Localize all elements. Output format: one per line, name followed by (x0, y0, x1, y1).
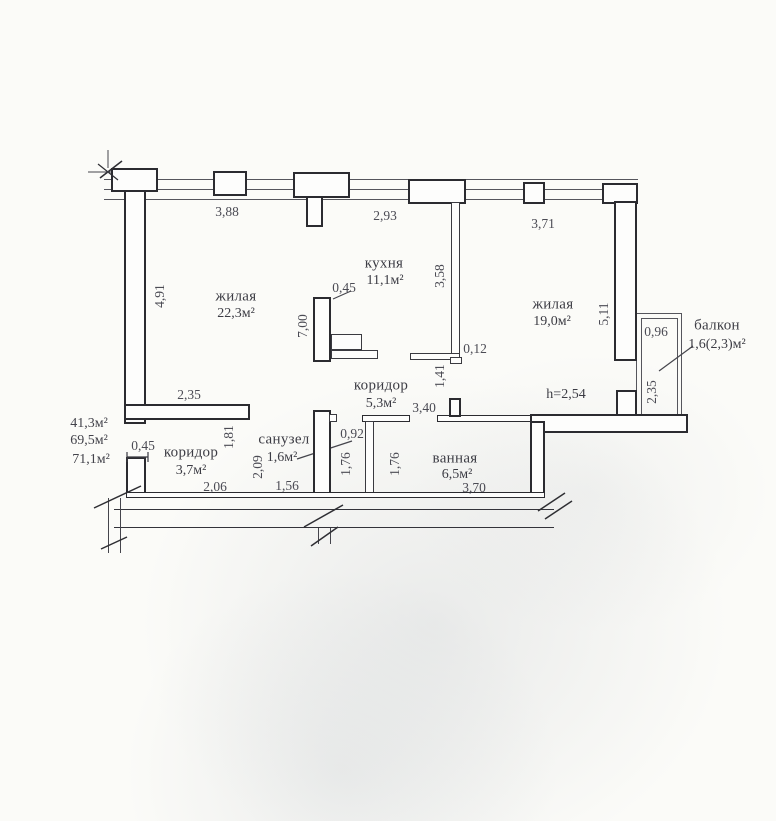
dim-1-76-bath: 1,76 (387, 452, 403, 476)
dim-1-56: 1,56 (275, 478, 299, 494)
dim-2-06: 2,06 (203, 479, 227, 495)
room-kitchen-area: 11,1м² (366, 273, 403, 289)
dim-4-91: 4,91 (152, 284, 168, 308)
wall-top-left-corner (111, 168, 158, 192)
room-living2-area: 19,0м² (533, 314, 571, 330)
kitchen-counter-upper (331, 334, 362, 350)
balcony-door-pier (616, 390, 637, 416)
room-balcony-name: балкон (694, 318, 740, 335)
room-wc-area: 1,6м² (267, 450, 298, 466)
room-living1-area: 22,3м² (217, 306, 255, 322)
dim-3-40: 3,40 (412, 400, 436, 416)
window-band-line (104, 199, 638, 200)
section-wall-stub (120, 498, 121, 553)
dim-7-00: 7,00 (295, 314, 311, 338)
section-wall-line (114, 509, 554, 510)
room-corridor-main-area: 5,3м² (366, 396, 397, 412)
window-pier-2-leg (306, 196, 323, 227)
window-pier-1 (213, 171, 247, 196)
window-pier-2-cap (293, 172, 350, 198)
section-wall-stub (108, 498, 109, 553)
room-wc-name: санузел (258, 432, 309, 449)
wall-bath-north-pier (449, 398, 461, 417)
dim-2-35-living1: 2,35 (177, 387, 201, 403)
wall-bath-east (530, 421, 545, 498)
dim-2-93: 2,93 (373, 208, 397, 224)
kitchen-partition-pier (313, 297, 331, 362)
room-corridor-main-name: коридор (354, 378, 408, 395)
room-balcony-area: 1,6(2,3)м² (688, 337, 745, 353)
dim-0-45-entry: 0,45 (131, 438, 155, 454)
room-living1-name: жилая (216, 289, 257, 306)
floor-plan-scan: жилая 22,3м² кухня 11,1м² жилая 19,0м² к… (0, 0, 776, 821)
area-summary-total: 71,1м² (72, 452, 110, 468)
dim-2-09: 2,09 (250, 455, 266, 479)
dim-0-92: 0,92 (340, 426, 364, 442)
section-wall-line (114, 527, 554, 528)
dim-1-41: 1,41 (432, 364, 448, 388)
dim-1-81: 1,81 (221, 425, 237, 449)
wall-wc-bath-divider (365, 421, 374, 494)
wall-left-exterior (124, 190, 146, 424)
dim-0-96: 0,96 (644, 324, 668, 340)
dim-3-58: 3,58 (432, 264, 448, 288)
room-bathroom-name: ванная (433, 451, 478, 468)
dim-1-76-wc: 1,76 (338, 452, 354, 476)
room-kitchen-name: кухня (365, 256, 404, 273)
dim-0-12: 0,12 (463, 341, 487, 357)
section-wall-stub (318, 528, 319, 544)
window-pier-3 (408, 179, 466, 204)
room-corridor-entry-area: 3,7м² (176, 463, 207, 479)
window-band-line (104, 189, 638, 190)
wall-kitchen-east (451, 202, 460, 359)
section-wall-stub (330, 528, 331, 544)
dim-2-35-balcony: 2,35 (644, 380, 660, 404)
area-summary-usable: 69,5м² (70, 433, 108, 449)
area-summary-living: 41,3м² (70, 416, 108, 432)
room-corridor-entry-name: коридор (164, 445, 218, 462)
window-band-line (104, 179, 638, 180)
ceiling-height-note: h=2,54 (546, 387, 585, 403)
dim-0-45-kitchen: 0,45 (332, 280, 356, 296)
room-living2-name: жилая (533, 297, 574, 314)
wall-wc-west-notch (329, 414, 337, 422)
entry-door-pier (126, 457, 146, 497)
wall-kitchen-foot (450, 357, 462, 364)
wall-wc-west (313, 410, 331, 495)
wall-right-section-south (530, 414, 688, 433)
kitchen-counter-lower (331, 350, 378, 359)
dim-3-70: 3,70 (462, 480, 486, 496)
dim-3-71: 3,71 (531, 216, 555, 232)
window-pier-4 (523, 182, 545, 204)
wall-right-exterior (614, 201, 637, 361)
dim-3-88: 3,88 (215, 204, 239, 220)
wall-living1-south (124, 404, 250, 420)
dim-5-11: 5,11 (596, 302, 612, 325)
